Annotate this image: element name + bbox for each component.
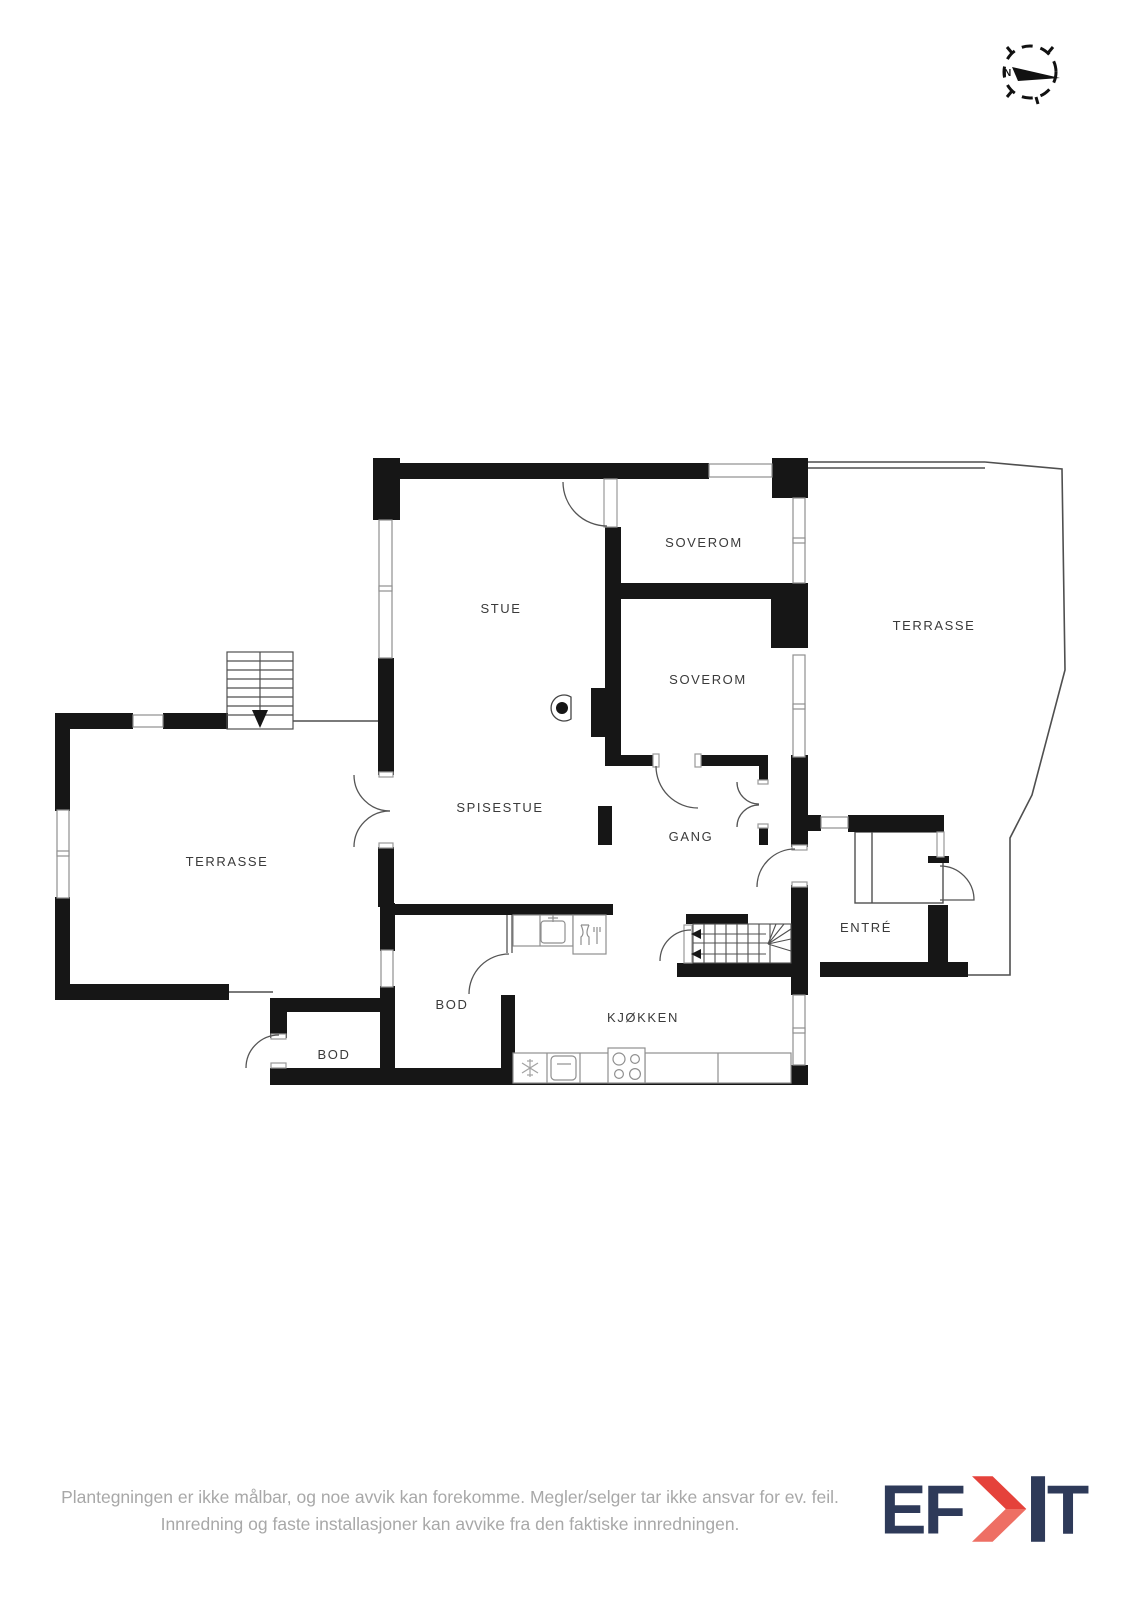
compass-north-label: N [1004, 68, 1011, 79]
room-label-stue: STUE [480, 601, 521, 616]
room-label-terrasse-left: TERRASSE [186, 854, 269, 869]
room-label-soverom-1: SOVEROM [665, 535, 743, 550]
floor-plan-drawing: STUE SOVEROM SOVEROM TERRASSE TERRASSE S… [0, 0, 1131, 1600]
room-label-entre: ENTRÉ [840, 920, 892, 935]
logo-chevron-icon [972, 1509, 1026, 1542]
fireplace-icon [551, 695, 571, 721]
room-label-kjokken: KJØKKEN [607, 1010, 679, 1025]
disclaimer-line-1: Plantegningen er ikke målbar, og noe avv… [0, 1484, 900, 1511]
room-label-terrasse-right: TERRASSE [893, 618, 976, 633]
room-label-bod-outer: BOD [318, 1047, 351, 1062]
oven-icon [551, 1056, 576, 1080]
stairs-down-arrow-icon [252, 710, 268, 728]
walls [55, 458, 968, 1085]
logo-bar [1031, 1476, 1045, 1542]
logo-text-t: T [1047, 1472, 1089, 1546]
dishwasher-icon [573, 915, 606, 954]
stairs-interior [691, 924, 791, 963]
room-label-soverom-2: SOVEROM [669, 672, 747, 687]
logo: EF T [884, 1472, 1090, 1546]
entry-porch [855, 832, 943, 903]
disclaimer: Plantegningen er ikke målbar, og noe avv… [0, 1484, 900, 1538]
logo-chevron-icon [972, 1476, 1026, 1509]
compass-icon: N [1004, 46, 1060, 104]
kitchen-fixtures [513, 915, 791, 1083]
sink-icon [541, 921, 565, 943]
stairs-exterior [227, 652, 293, 729]
room-label-gang: GANG [669, 829, 714, 844]
disclaimer-line-2: Innredning og faste installasjoner kan a… [0, 1511, 900, 1538]
room-label-spisestue: SPISESTUE [456, 800, 543, 815]
logo-text-ef: EF [884, 1472, 964, 1546]
floor-plan-page: STUE SOVEROM SOVEROM TERRASSE TERRASSE S… [0, 0, 1131, 1600]
room-label-bod-inner: BOD [436, 997, 469, 1012]
room-labels: STUE SOVEROM SOVEROM TERRASSE TERRASSE S… [186, 535, 976, 1062]
